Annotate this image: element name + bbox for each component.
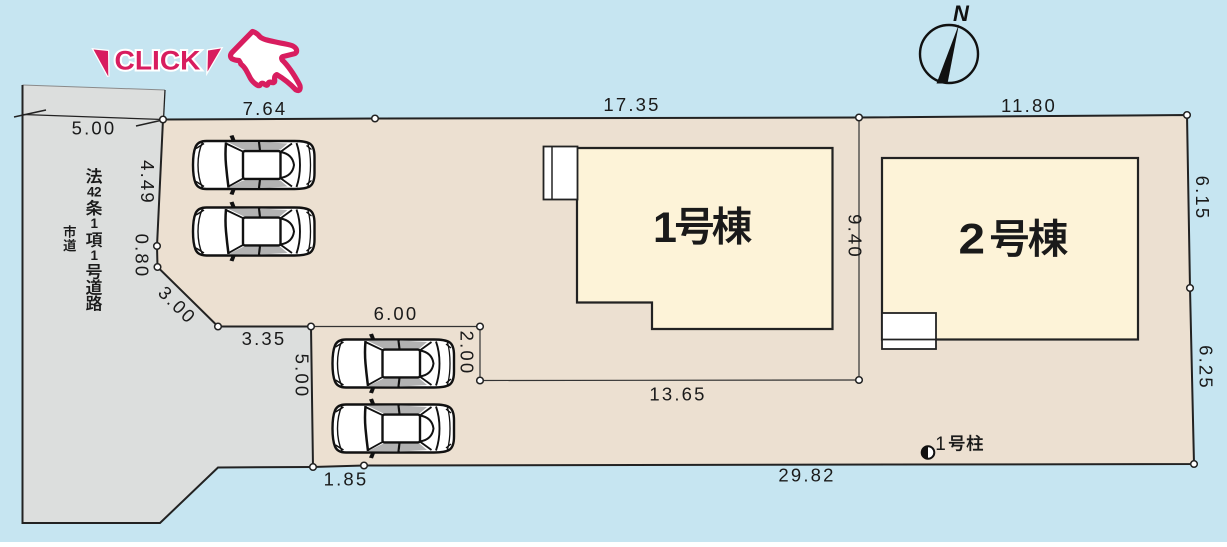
svg-text:1: 1 <box>90 248 98 263</box>
svg-text:3.35: 3.35 <box>242 328 287 349</box>
svg-text:5.00: 5.00 <box>292 354 313 399</box>
svg-text:4.49: 4.49 <box>137 160 158 205</box>
svg-text:7.64: 7.64 <box>243 98 288 119</box>
svg-text:1.85: 1.85 <box>324 469 369 490</box>
svg-text:6.00: 6.00 <box>374 303 419 324</box>
svg-text:CLICK: CLICK <box>115 46 202 76</box>
svg-text:1: 1 <box>653 204 677 252</box>
svg-text:6.25: 6.25 <box>1196 345 1217 390</box>
svg-text:2: 2 <box>959 216 986 264</box>
svg-text:0.80: 0.80 <box>132 234 153 279</box>
svg-text:29.82: 29.82 <box>778 465 835 486</box>
svg-text:11.80: 11.80 <box>1001 95 1057 116</box>
svg-text:13.65: 13.65 <box>649 384 706 405</box>
svg-text:5.00: 5.00 <box>72 118 117 139</box>
svg-text:42: 42 <box>87 184 101 199</box>
svg-text:1: 1 <box>935 434 946 455</box>
svg-text:2.00: 2.00 <box>457 331 478 376</box>
svg-text:1: 1 <box>90 216 98 231</box>
svg-text:9.40: 9.40 <box>845 214 866 259</box>
svg-text:N: N <box>953 1 970 26</box>
svg-text:6.15: 6.15 <box>1192 176 1213 221</box>
svg-text:17.35: 17.35 <box>603 94 660 115</box>
